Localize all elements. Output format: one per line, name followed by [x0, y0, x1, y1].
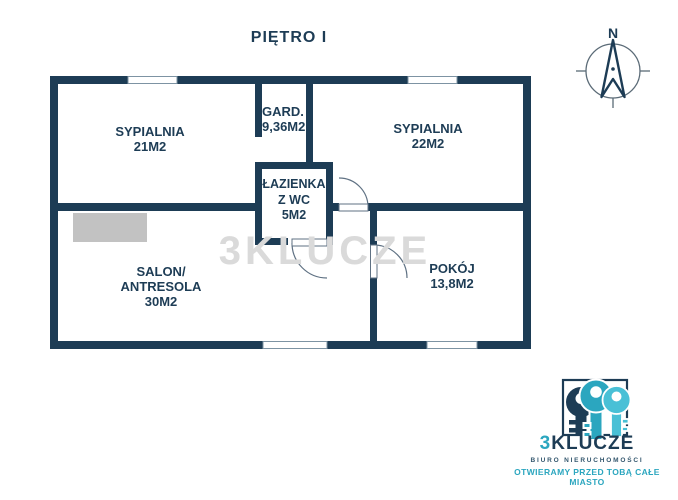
room-area: 9,36M2: [262, 119, 322, 134]
wall-wardrobe-left: [255, 84, 262, 137]
room-name: GARD.: [262, 104, 322, 119]
wall-bedroom2-bottom: [368, 203, 531, 211]
room-label-living-room: SALON/ ANTRESOLA 30M2: [101, 264, 221, 309]
room-name: SYPIALNIA: [368, 121, 488, 136]
room-name-2: ANTRESOLA: [101, 279, 221, 294]
wall-divider-lower: [370, 278, 377, 349]
room-area: 30M2: [101, 294, 221, 309]
wall-outer-left: [50, 76, 58, 349]
window-bedroom2: [408, 77, 457, 84]
floor-plan-page: PIĘTRO I N 3KLUCZE SYPIALNIA 21M2 GARD. …: [0, 0, 678, 500]
room-label-bedroom-2: SYPIALNIA 22M2: [368, 121, 488, 151]
room-label-wardrobe: GARD. 9,36M2: [262, 104, 322, 134]
room-name-2: Z WC: [262, 193, 326, 209]
room-label-bathroom: ŁAZIENKA Z WC 5M2: [262, 177, 326, 224]
door-arc-bedroom2: [339, 178, 368, 207]
agency-logo-tagline: OTWIERAMY PRZED TOBĄ CAŁE MIASTO: [497, 467, 677, 487]
window-living-room: [263, 342, 327, 349]
agency-logo-subtitle: BIURO NIERUCHOMOŚCI: [522, 457, 652, 464]
wall-bedroom1-bottom: [50, 203, 255, 211]
room-area: 22M2: [368, 136, 488, 151]
logo-brand-suffix: KLUCZE: [551, 433, 634, 454]
room-label-room: POKÓJ 13,8M2: [392, 261, 512, 291]
room-name: POKÓJ: [392, 261, 512, 276]
room-area: 5M2: [262, 208, 326, 224]
compass-north-label: N: [603, 25, 623, 41]
page-title: PIĘTRO I: [189, 29, 389, 47]
compass-center-dot: [611, 67, 615, 71]
door-leaf-bedroom2: [339, 204, 368, 211]
wall-outer-top: [50, 76, 531, 84]
wall-outer-right: [523, 76, 531, 349]
window-bedroom1: [128, 77, 177, 84]
logo-brand-prefix: 3: [540, 433, 552, 454]
wall-bedroom2-bottom-stub: [333, 203, 339, 211]
room-area: 21M2: [90, 139, 210, 154]
wall-bathroom-top: [255, 162, 333, 169]
agency-logo-wordmark: 3KLUCZE: [527, 433, 647, 455]
room-name: ŁAZIENKA: [262, 177, 326, 193]
window-room: [427, 342, 477, 349]
room-name: SALON/: [101, 264, 221, 279]
room-label-bedroom-1: SYPIALNIA 21M2: [90, 124, 210, 154]
room-name: SYPIALNIA: [90, 124, 210, 139]
room-area: 13,8M2: [392, 276, 512, 291]
compass-icon: [576, 40, 650, 108]
agency-logo-mark: [563, 380, 631, 441]
